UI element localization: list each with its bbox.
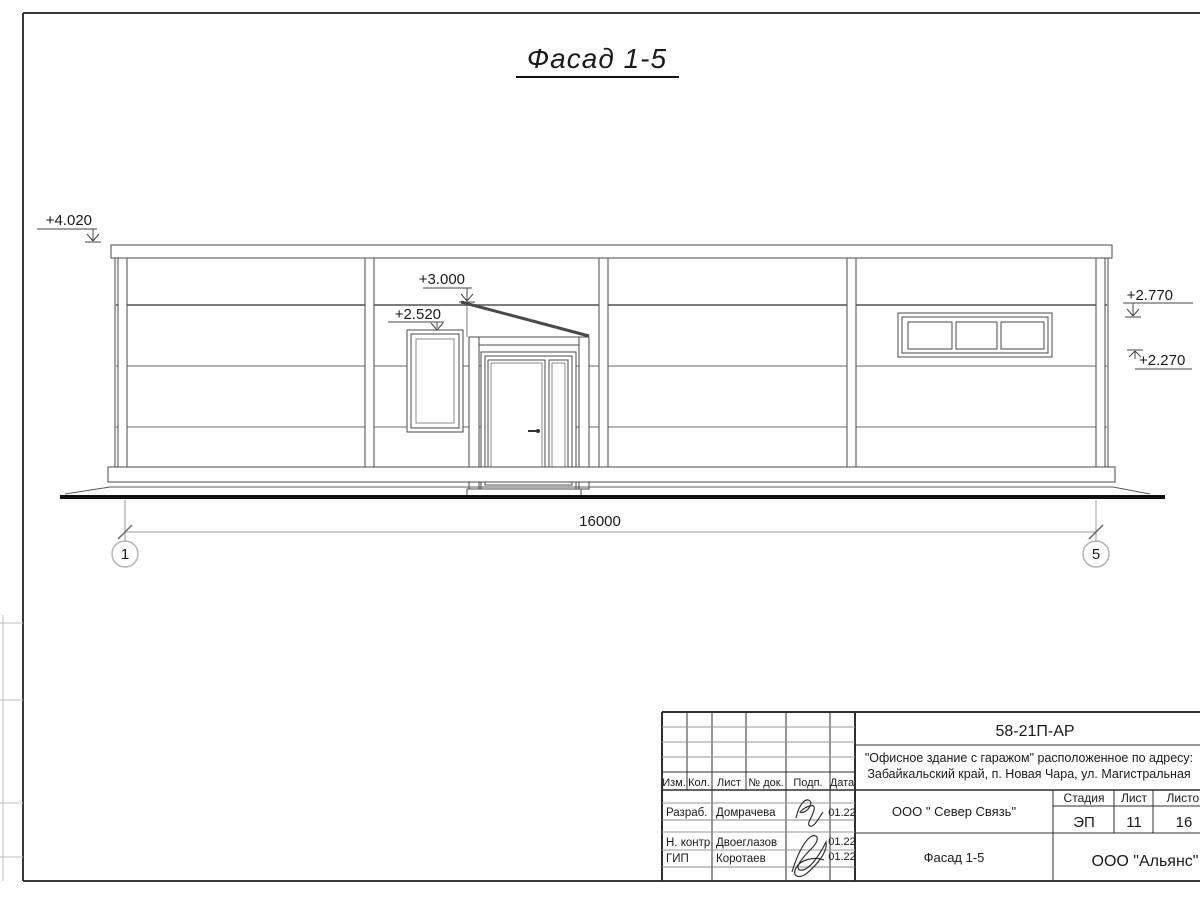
col-sign: Подп. xyxy=(793,777,822,789)
list-label: Лист xyxy=(1121,791,1148,805)
apron-edge xyxy=(65,487,1150,494)
building-facade xyxy=(60,245,1165,497)
developer-signature xyxy=(796,800,823,826)
col-izm: Изм. xyxy=(662,777,686,789)
dimension-16000: 16000 xyxy=(118,500,1103,545)
plinth-band xyxy=(108,467,1115,482)
porch-beam xyxy=(469,337,588,345)
contractor-name: ООО "Альянс" xyxy=(1092,853,1199,870)
col-list: Лист xyxy=(717,777,741,789)
left-window xyxy=(407,330,463,432)
left-margin-column xyxy=(0,615,23,881)
checker-name: Двоеглазов xyxy=(716,837,777,849)
client-name: ООО " Север Связь" xyxy=(892,804,1017,819)
col-date: Дата xyxy=(830,777,855,789)
doc-code: 58-21П-АР xyxy=(995,723,1074,740)
developer-date: 01.22 xyxy=(828,807,856,819)
right-strip-window xyxy=(898,313,1052,357)
elevation-value: +2.520 xyxy=(395,306,441,323)
porch-post-right xyxy=(579,337,589,489)
col-kol: Кол. xyxy=(688,777,710,789)
gip-label: ГИП xyxy=(666,853,689,865)
elevation-value: +2.270 xyxy=(1139,352,1185,369)
gip-name: Коротаев xyxy=(716,853,766,865)
listov-value: 16 xyxy=(1176,814,1193,831)
drawing-title-text: Фасад 1-5 xyxy=(527,43,667,74)
project-address-line1: "Офисное здание с гаражом" расположенное… xyxy=(865,751,1193,765)
porch-post-left xyxy=(469,337,479,489)
checker-gip-signature xyxy=(792,836,826,877)
developer-name: Домрачева xyxy=(716,807,776,819)
axis-number: 5 xyxy=(1092,546,1100,563)
dimension-text: 16000 xyxy=(579,513,621,530)
elevation-mark-right-lower: +2.270 xyxy=(1127,350,1192,369)
axis-number: 1 xyxy=(121,546,129,563)
facade-wall xyxy=(115,258,1108,467)
facade-drawing-canvas: Фасад 1-5 xyxy=(0,0,1200,900)
drawing-sheet: Фасад 1-5 xyxy=(0,0,1200,900)
elevation-mark-right-upper: +2.770 xyxy=(1123,287,1193,317)
entrance-step xyxy=(467,489,581,496)
elevation-value: +3.000 xyxy=(419,271,465,288)
listov-label: Листов xyxy=(1167,791,1200,805)
checker-date: 01.22 xyxy=(828,836,856,848)
stage-value: ЭП xyxy=(1073,814,1095,831)
stage-label: Стадия xyxy=(1064,791,1105,805)
elevation-value: +2.770 xyxy=(1127,287,1173,304)
elevation-mark-parapet: +4.020 xyxy=(37,212,101,242)
list-value: 11 xyxy=(1126,814,1142,831)
drawing-title: Фасад 1-5 xyxy=(516,43,679,77)
gip-date: 01.22 xyxy=(828,851,856,863)
axis-bubble-5: 5 xyxy=(1083,541,1109,567)
axis-bubble-1: 1 xyxy=(112,541,138,567)
project-address-line2: Забайкальский край, п. Новая Чара, ул. М… xyxy=(867,767,1190,781)
sheet-name: Фасад 1-5 xyxy=(924,850,985,865)
checker-label: Н. контр. xyxy=(666,837,713,849)
developer-label: Разраб. xyxy=(666,807,707,819)
col-doc-no: № док. xyxy=(748,777,783,789)
parapet-fascia-band xyxy=(111,245,1112,258)
signatures xyxy=(792,800,826,877)
elevation-value: +4.020 xyxy=(46,212,92,229)
